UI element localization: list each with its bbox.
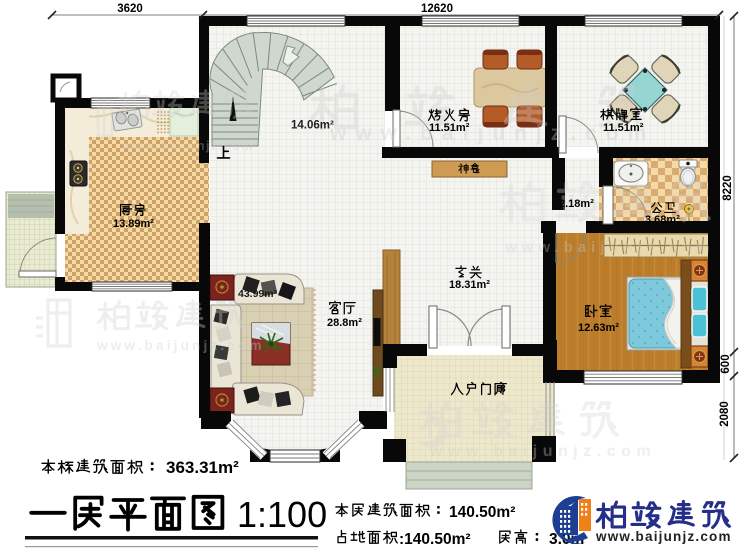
- svg-text:www.baijunjz.com: www.baijunjz.com: [429, 443, 656, 460]
- svg-text:140.50m²: 140.50m²: [449, 504, 515, 521]
- svg-text:www.baijunjz.com: www.baijunjz.com: [504, 239, 714, 256]
- svg-text:www.baijunjz.com: www.baijunjz.com: [595, 529, 732, 544]
- svg-text:11.51m²: 11.51m²: [603, 122, 644, 134]
- svg-text:www.baijunjz.com: www.baijunjz.com: [96, 338, 265, 353]
- svg-text:363.31m²: 363.31m²: [166, 458, 239, 477]
- svg-text:12.63m²: 12.63m²: [578, 322, 619, 334]
- svg-text:1:100: 1:100: [237, 494, 327, 535]
- svg-text:3620: 3620: [117, 3, 143, 15]
- svg-text:14.06m²: 14.06m²: [291, 120, 334, 132]
- svg-text::140.50m²: :140.50m²: [399, 531, 471, 548]
- svg-text:600: 600: [720, 354, 732, 373]
- svg-text:3.68m²: 3.68m²: [645, 214, 680, 226]
- svg-text:12620: 12620: [421, 3, 453, 15]
- svg-text:11.51m²: 11.51m²: [429, 122, 470, 134]
- svg-text:28.8m²: 28.8m²: [327, 317, 362, 329]
- svg-text:2.18m²: 2.18m²: [559, 198, 594, 210]
- svg-text:18.31m²: 18.31m²: [449, 279, 490, 291]
- svg-text:www.baijunjz.com: www.baijunjz.com: [121, 139, 254, 153]
- svg-text:2080: 2080: [719, 401, 731, 427]
- svg-text:8220: 8220: [722, 175, 734, 201]
- svg-text:43.99m²: 43.99m²: [238, 288, 278, 300]
- svg-text:13.89m²: 13.89m²: [113, 218, 154, 230]
